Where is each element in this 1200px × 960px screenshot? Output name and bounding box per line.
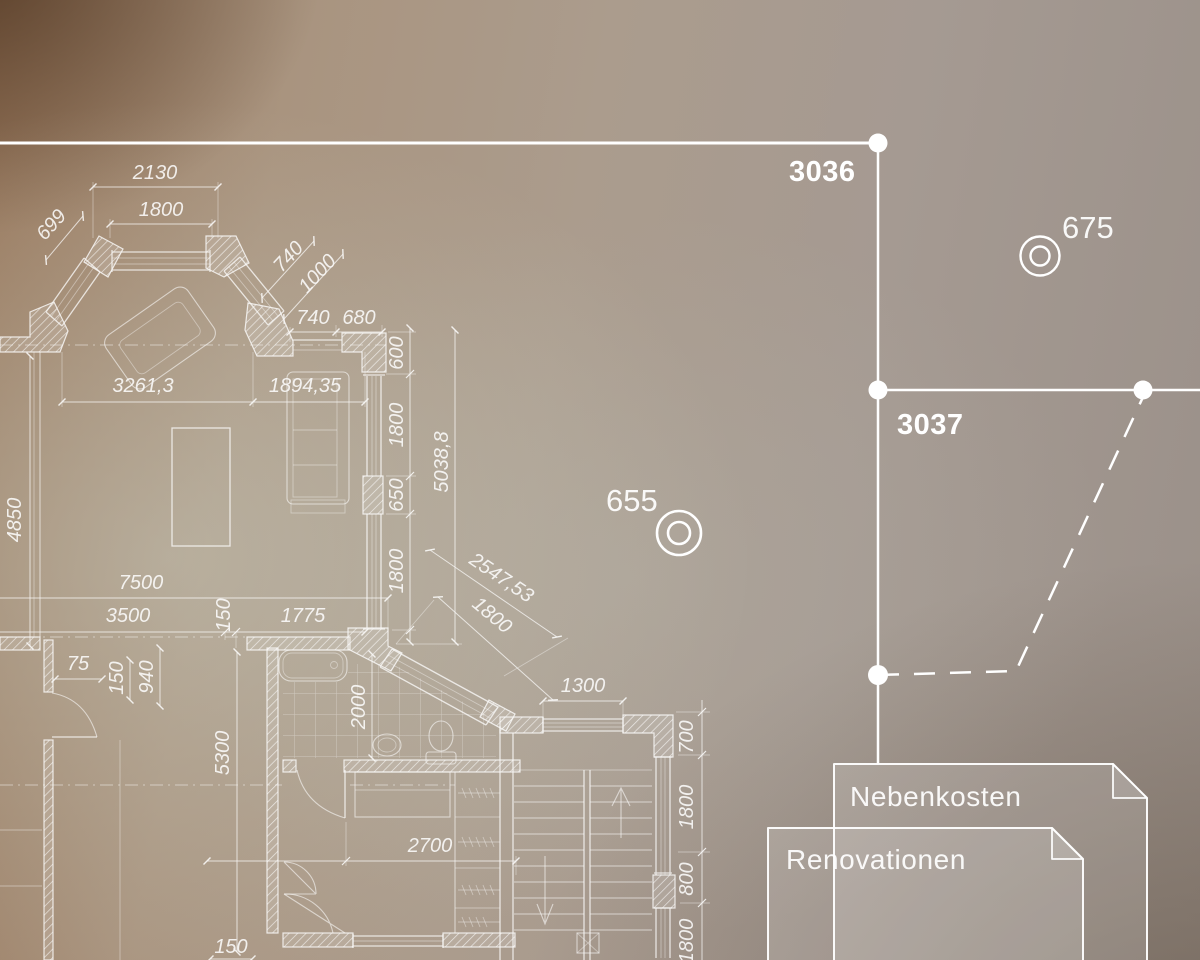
dimension-label: 7500 xyxy=(119,572,164,594)
dimension-label: 680 xyxy=(342,307,375,329)
dimension-label: 699 xyxy=(32,205,71,245)
windows xyxy=(46,250,672,958)
document-label: Renovationen xyxy=(786,844,966,875)
corner-shelf xyxy=(284,862,345,933)
dimension-label: 600 xyxy=(386,336,408,369)
boundary-node[interactable] xyxy=(868,665,888,685)
dimension-label: 3500 xyxy=(106,605,151,627)
dimension-label: 1800 xyxy=(139,199,184,221)
dimension-label: 1300 xyxy=(561,675,606,697)
bathroom xyxy=(279,650,496,764)
table xyxy=(172,428,230,546)
page-fold-icon xyxy=(1113,764,1147,798)
dimension-label: 1800 xyxy=(386,403,408,448)
dimension-label: 740 xyxy=(296,307,329,329)
dimension-lines xyxy=(0,182,710,960)
blueprint-canvas: 2130 1800 699 740 1000 740 680 600 1800 … xyxy=(0,0,1200,960)
document-label: Nebenkosten xyxy=(850,781,1022,812)
dimension-label: 1800 xyxy=(676,919,698,960)
poi-number-label: 675 xyxy=(1062,210,1114,245)
dimension-label: 2700 xyxy=(407,835,453,857)
dimension-label: 150 xyxy=(214,936,247,958)
boundary-node[interactable] xyxy=(869,381,888,400)
staircase xyxy=(513,770,652,960)
poi-number-label: 655 xyxy=(606,483,658,518)
bathtub xyxy=(279,650,347,681)
parcel-number-label: 3037 xyxy=(897,409,964,441)
dimension-label: 150 xyxy=(106,661,128,694)
wardrobe xyxy=(455,772,500,933)
dimension-label: 1800 xyxy=(676,785,698,830)
dimension-label: 1775 xyxy=(281,605,326,627)
dimension-label: 2000 xyxy=(348,685,370,731)
dimension-label: 5300 xyxy=(212,731,234,776)
floor-plan-drawing: 2130 1800 699 740 1000 740 680 600 1800 … xyxy=(0,162,710,960)
dimension-label: 1894,35 xyxy=(269,375,342,397)
dimension-label: 740 xyxy=(269,237,308,276)
stair-arrow-up xyxy=(612,788,630,838)
dimension-label: 650 xyxy=(386,478,408,511)
dimension-labels: 2130 1800 699 740 1000 740 680 600 1800 … xyxy=(4,162,698,960)
dimension-label: 700 xyxy=(676,720,698,753)
document-cards: Nebenkosten Renovationen xyxy=(768,764,1147,960)
dimension-label: 2130 xyxy=(132,162,178,184)
dimension-label: 1800 xyxy=(468,593,516,638)
dimension-label: 3261,3 xyxy=(112,375,173,397)
dimension-label: 150 xyxy=(213,598,235,631)
parcel-number-label: 3036 xyxy=(789,156,856,188)
dimension-label: 800 xyxy=(676,862,698,895)
dimension-label: 1800 xyxy=(386,549,408,594)
document-card-renovationen[interactable]: Renovationen xyxy=(768,828,1083,960)
boundary-node[interactable] xyxy=(1134,381,1153,400)
dimension-label: 4850 xyxy=(4,498,26,543)
dimension-label: 75 xyxy=(67,653,90,675)
dimension-label: 5038,8 xyxy=(431,431,453,492)
boundary-overlay: 3036 3037 675 655 xyxy=(0,134,1200,765)
blueprint-hero: 2130 1800 699 740 1000 740 680 600 1800 … xyxy=(0,0,1200,960)
dimension-label: 940 xyxy=(136,660,158,693)
poi-marker-675[interactable]: 675 xyxy=(1021,210,1114,276)
boundary-node[interactable] xyxy=(869,134,888,153)
dresser xyxy=(355,772,450,817)
poi-marker-655[interactable]: 655 xyxy=(606,483,701,555)
